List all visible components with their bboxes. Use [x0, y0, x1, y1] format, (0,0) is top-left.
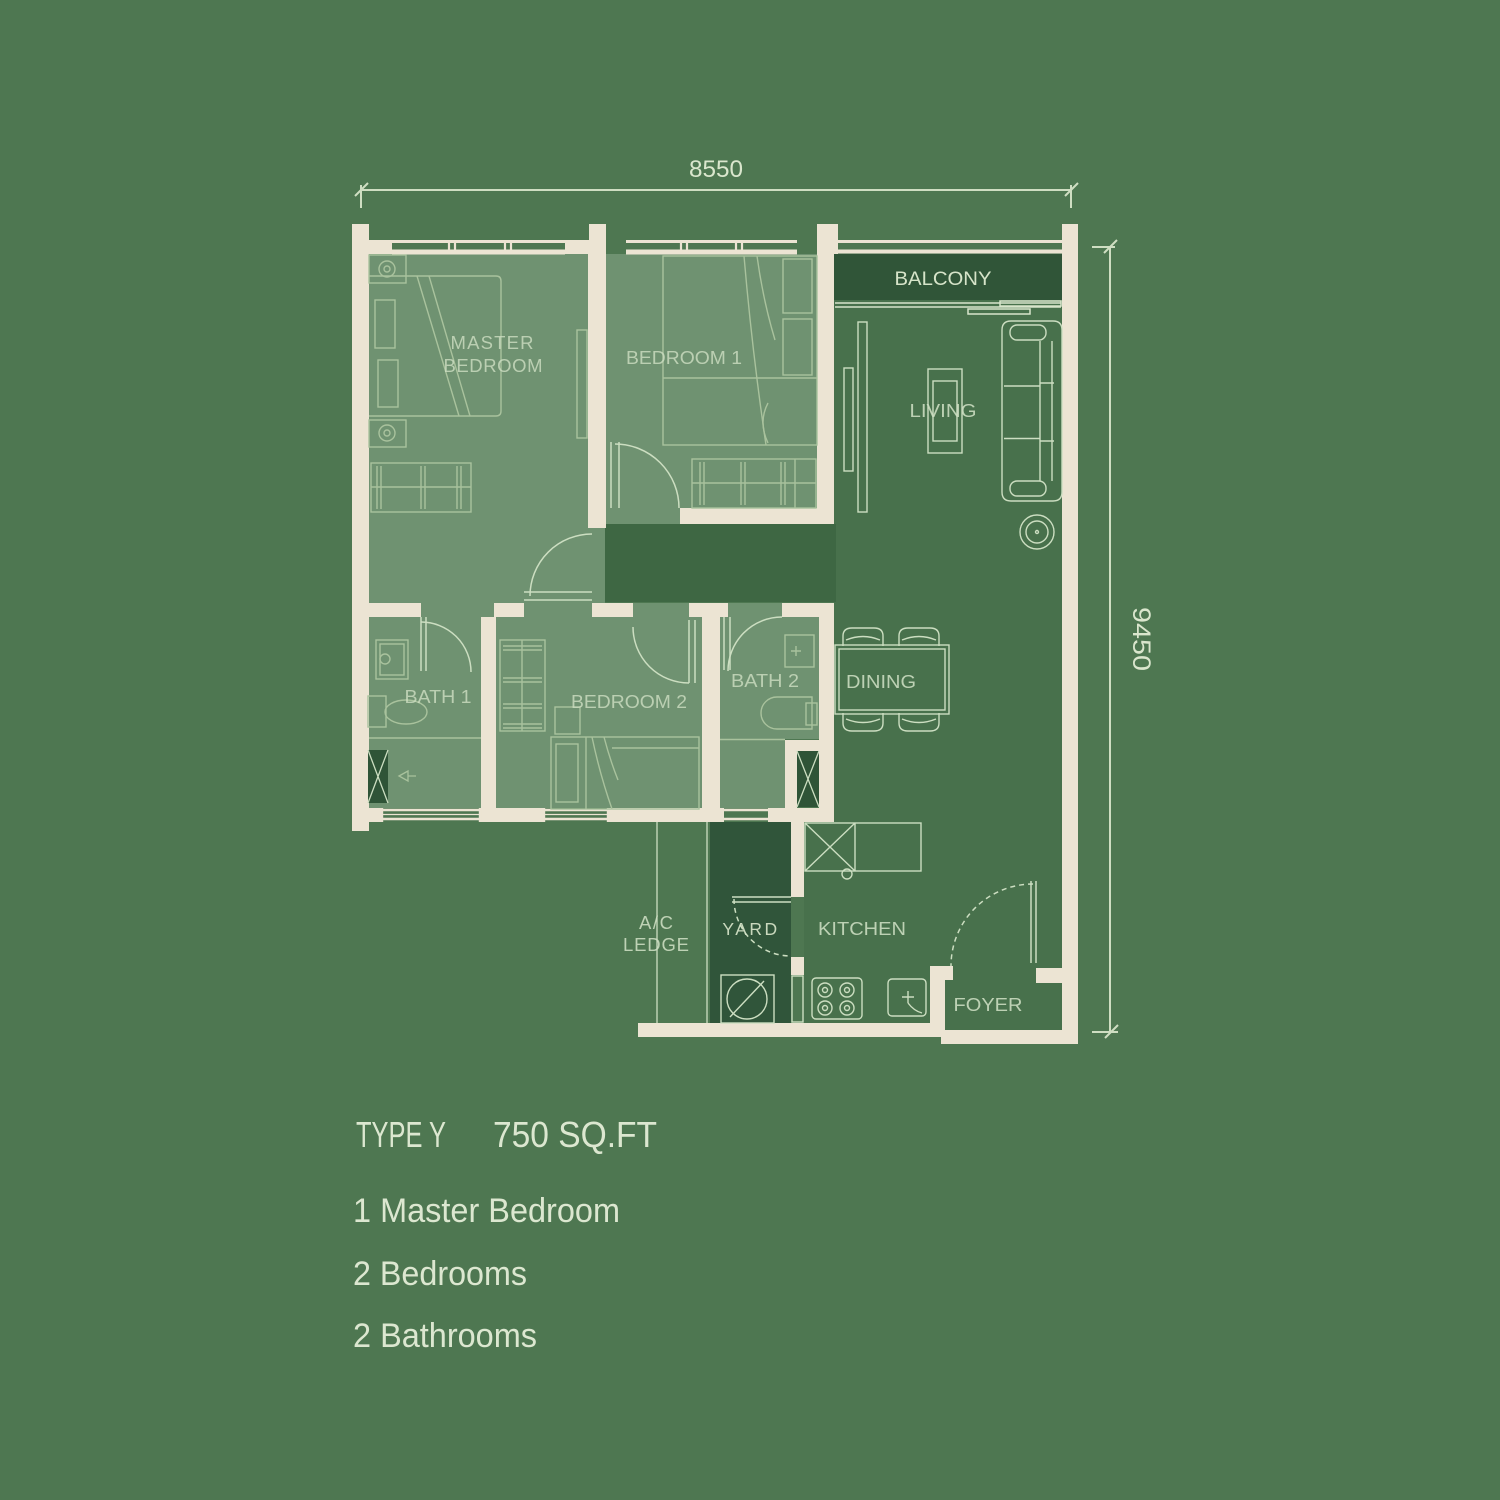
svg-text:BATH 2: BATH 2	[731, 670, 799, 691]
svg-text:BALCONY: BALCONY	[895, 269, 992, 290]
svg-text:BATH 1: BATH 1	[405, 686, 472, 707]
svg-text:FOYER: FOYER	[954, 994, 1023, 1015]
svg-text:LEDGE: LEDGE	[623, 934, 689, 955]
svg-text:MASTER: MASTER	[451, 332, 534, 353]
svg-text:1 Master Bedroom: 1 Master Bedroom	[353, 1192, 620, 1230]
svg-text:750 SQ.FT: 750 SQ.FT	[493, 1114, 657, 1155]
svg-text:A/C: A/C	[639, 912, 673, 933]
svg-text:9450: 9450	[1127, 607, 1155, 671]
svg-text:DINING: DINING	[846, 671, 916, 692]
svg-text:KITCHEN: KITCHEN	[818, 918, 906, 939]
svg-text:8550: 8550	[689, 156, 743, 183]
svg-text:YARD: YARD	[722, 919, 779, 939]
svg-text:LIVING: LIVING	[910, 400, 977, 421]
svg-text:BEDROOM: BEDROOM	[444, 355, 543, 376]
svg-text:TYPE Y: TYPE Y	[356, 1114, 446, 1155]
svg-text:2 Bedrooms: 2 Bedrooms	[353, 1255, 527, 1293]
svg-text:BEDROOM 2: BEDROOM 2	[571, 691, 687, 712]
svg-text:BEDROOM 1: BEDROOM 1	[626, 347, 742, 368]
svg-text:2 Bathrooms: 2 Bathrooms	[353, 1317, 537, 1355]
